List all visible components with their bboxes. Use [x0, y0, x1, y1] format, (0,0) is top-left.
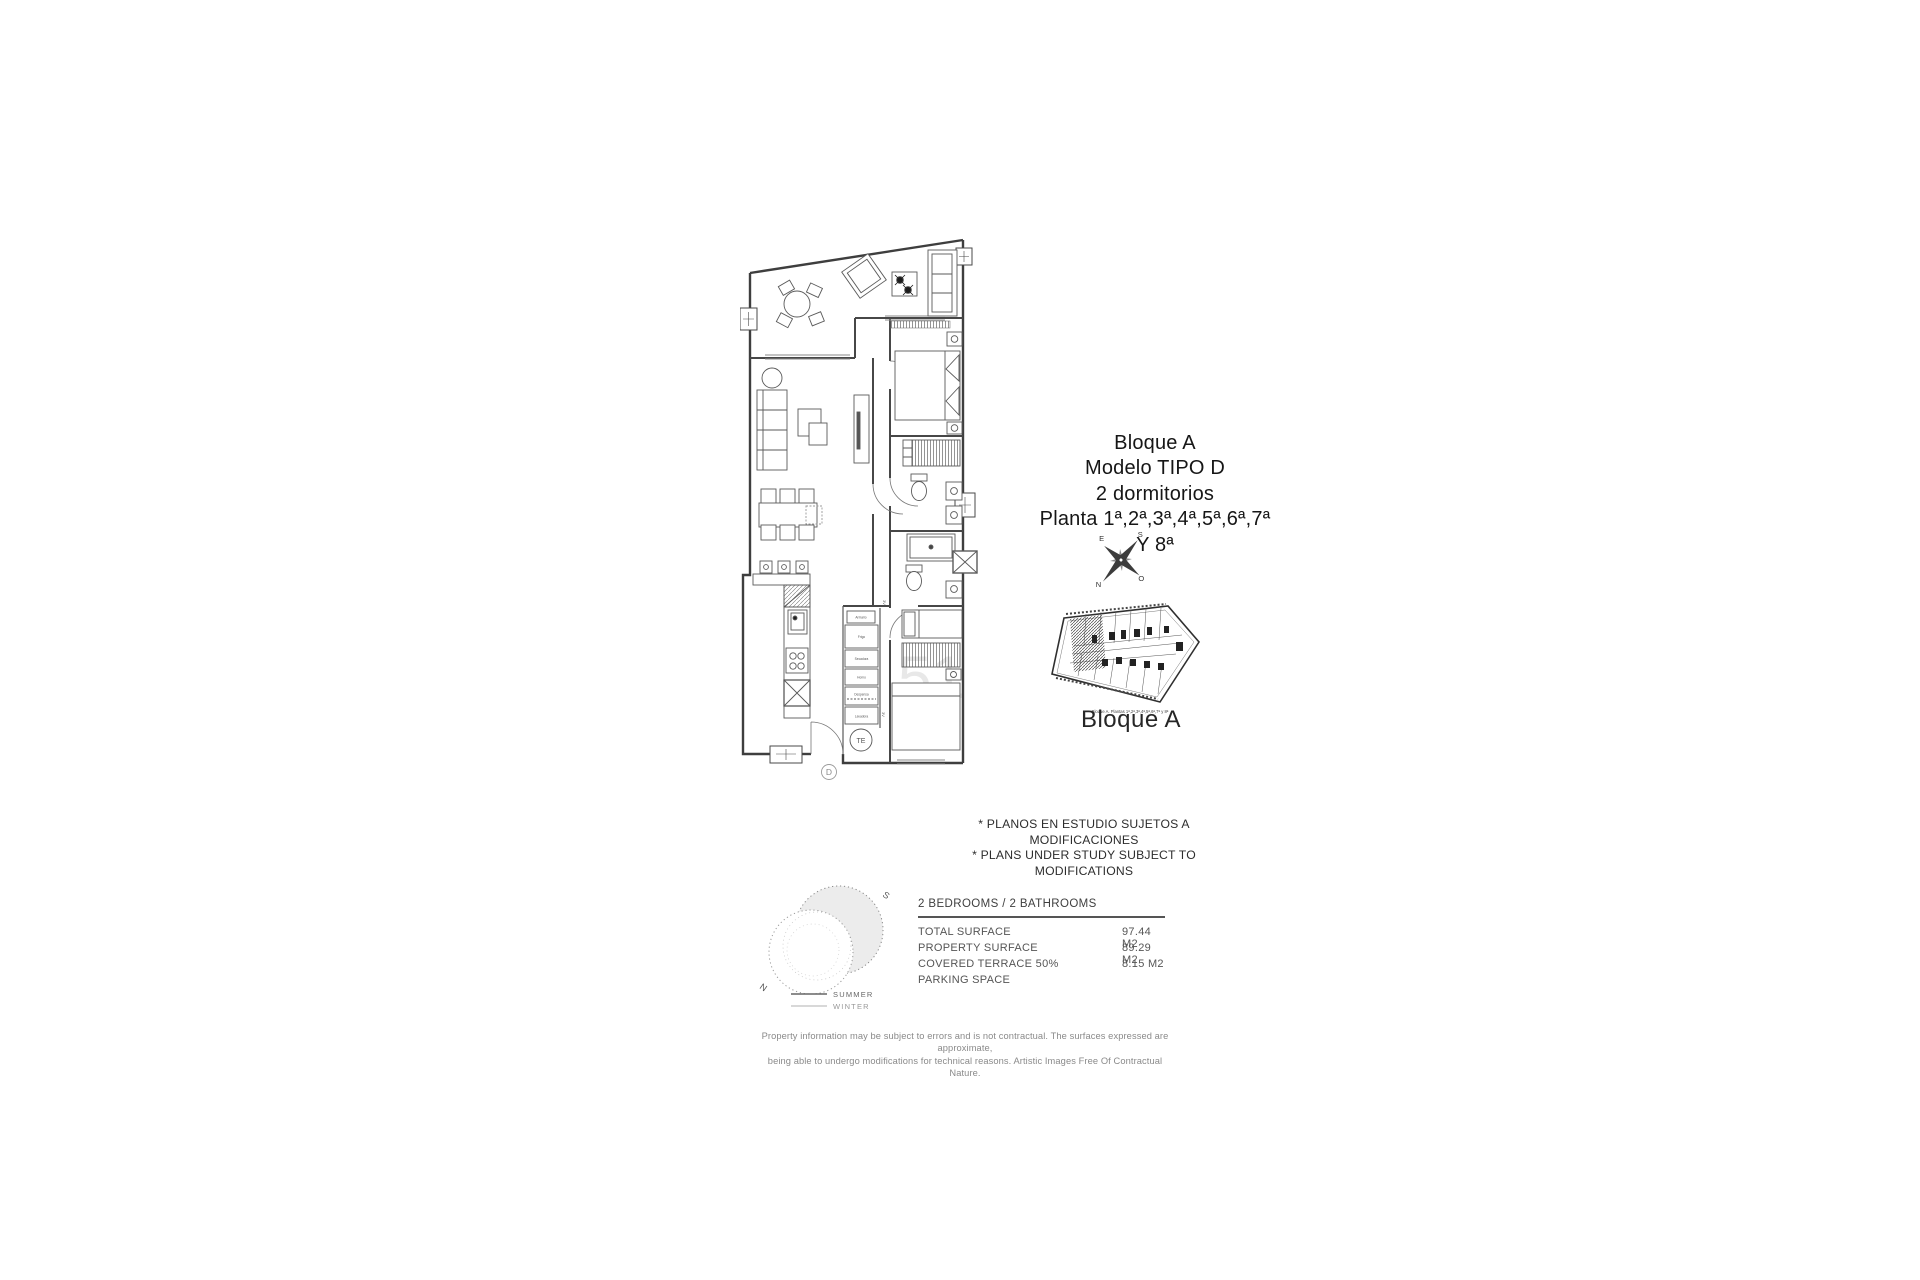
compass-north-label: N	[1096, 580, 1101, 589]
bathroom2-fixtures	[906, 534, 977, 598]
terrace-lounger	[842, 254, 887, 299]
unit-letter: D	[826, 767, 832, 777]
dining-set	[759, 489, 822, 540]
spec-value: 8.15 M2	[1122, 958, 1164, 970]
compass-west-label: O	[1138, 574, 1144, 583]
bedroom1-window-blind	[890, 321, 950, 328]
sun-path-diagram: S N SUMMER WINTER	[755, 880, 895, 1015]
terrace-plant-table	[892, 272, 917, 296]
table-row: PROPERTY SURFACE 89.29 M2	[918, 942, 1165, 958]
terrace-bench	[928, 250, 957, 316]
spec-label: PARKING SPACE	[918, 974, 1010, 986]
bathroom1-fixtures	[903, 440, 962, 524]
table-row: PARKING SPACE	[918, 974, 1165, 990]
disclaimer-line-2: being able to undergo modifications for …	[760, 1055, 1170, 1080]
specs-divider	[918, 916, 1165, 918]
bedroom2-double-bed	[892, 683, 960, 750]
sun-south-label: S	[881, 889, 892, 901]
water-heater-label: TE	[857, 738, 866, 745]
winter-legend-label: WINTER	[833, 1002, 870, 1011]
title-line-2: Modelo TIPO D	[1035, 456, 1275, 481]
terrace-round-table	[784, 291, 810, 317]
spec-label: PROPERTY SURFACE	[918, 942, 1038, 954]
surface-specs-table: 2 BEDROOMS / 2 BATHROOMS TOTAL SURFACE 9…	[918, 898, 1165, 990]
disclaimer-line-1: Property information may be subject to e…	[760, 1030, 1170, 1055]
tv-unit	[854, 395, 869, 463]
kitchen-fixtures	[753, 561, 810, 718]
summer-legend-label: SUMMER	[833, 990, 874, 999]
unit-letter-badge: D	[822, 765, 837, 780]
table-row: TOTAL SURFACE 97.44 M2	[918, 926, 1165, 942]
disclaimer: Property information may be subject to e…	[760, 1030, 1170, 1080]
side-table	[762, 368, 782, 388]
table-row: COVERED TERRACE 50% 8.15 M2	[918, 958, 1165, 974]
door-tag-1: 3V	[882, 600, 887, 605]
bathtub	[912, 440, 960, 466]
kitchen-peninsula	[753, 574, 810, 585]
note-line-en: * PLANS UNDER STUDY SUBJECT TO MODIFICAT…	[940, 848, 1228, 879]
key-plan-title: Bloque A	[1046, 706, 1216, 734]
utility-label-0: Armario	[855, 616, 866, 620]
highlighted-unit	[1070, 615, 1106, 672]
specs-header: 2 BEDROOMS / 2 BATHROOMS	[918, 898, 1165, 910]
bedroom1-bed	[895, 351, 960, 420]
floor-plan-drawing: 51	[740, 228, 1000, 800]
hob	[786, 648, 808, 673]
compass-rose-icon: S N O E	[1083, 528, 1163, 608]
utility-label-5: Lavadora	[855, 715, 869, 719]
toilet-2	[907, 572, 922, 591]
title-line-3: 2 dormitorios	[1035, 482, 1275, 507]
door-tag-2: 3V	[881, 712, 886, 717]
compass-south-label: S	[1138, 530, 1143, 539]
bedroom1-furniture	[895, 332, 962, 434]
utility-label-4: Despensa	[854, 693, 869, 697]
note-line-es: * PLANOS EN ESTUDIO SUJETOS A MODIFICACI…	[940, 817, 1228, 848]
terrace-furniture	[776, 250, 957, 328]
utility-closet: Armario Frigo Secadora Horno Despensa La…	[845, 611, 878, 751]
modification-notes: * PLANOS EN ESTUDIO SUJETOS A MODIFICACI…	[940, 817, 1228, 879]
living-furniture	[757, 368, 869, 540]
toilet	[912, 482, 927, 501]
utility-label-3: Horno	[857, 676, 866, 680]
wardrobe	[902, 643, 960, 667]
utility-label-1: Frigo	[858, 635, 865, 639]
spec-label: COVERED TERRACE 50%	[918, 958, 1059, 970]
spec-label: TOTAL SURFACE	[918, 926, 1011, 938]
kitchen-shaft	[784, 680, 810, 706]
block-key-plan: Bloque A. Plantas 1ª,2ª,3ª,4ª,5ª,6ª,7ª y…	[1046, 602, 1216, 717]
utility-label-2: Secadora	[855, 657, 869, 661]
winter-sun-circle	[769, 910, 853, 994]
floorplan-page: 51	[0, 0, 1920, 1280]
shaft-box	[953, 551, 977, 573]
sun-north-label: N	[758, 981, 769, 993]
compass-east-label: E	[1099, 534, 1104, 543]
title-line-1: Bloque A	[1035, 431, 1275, 456]
